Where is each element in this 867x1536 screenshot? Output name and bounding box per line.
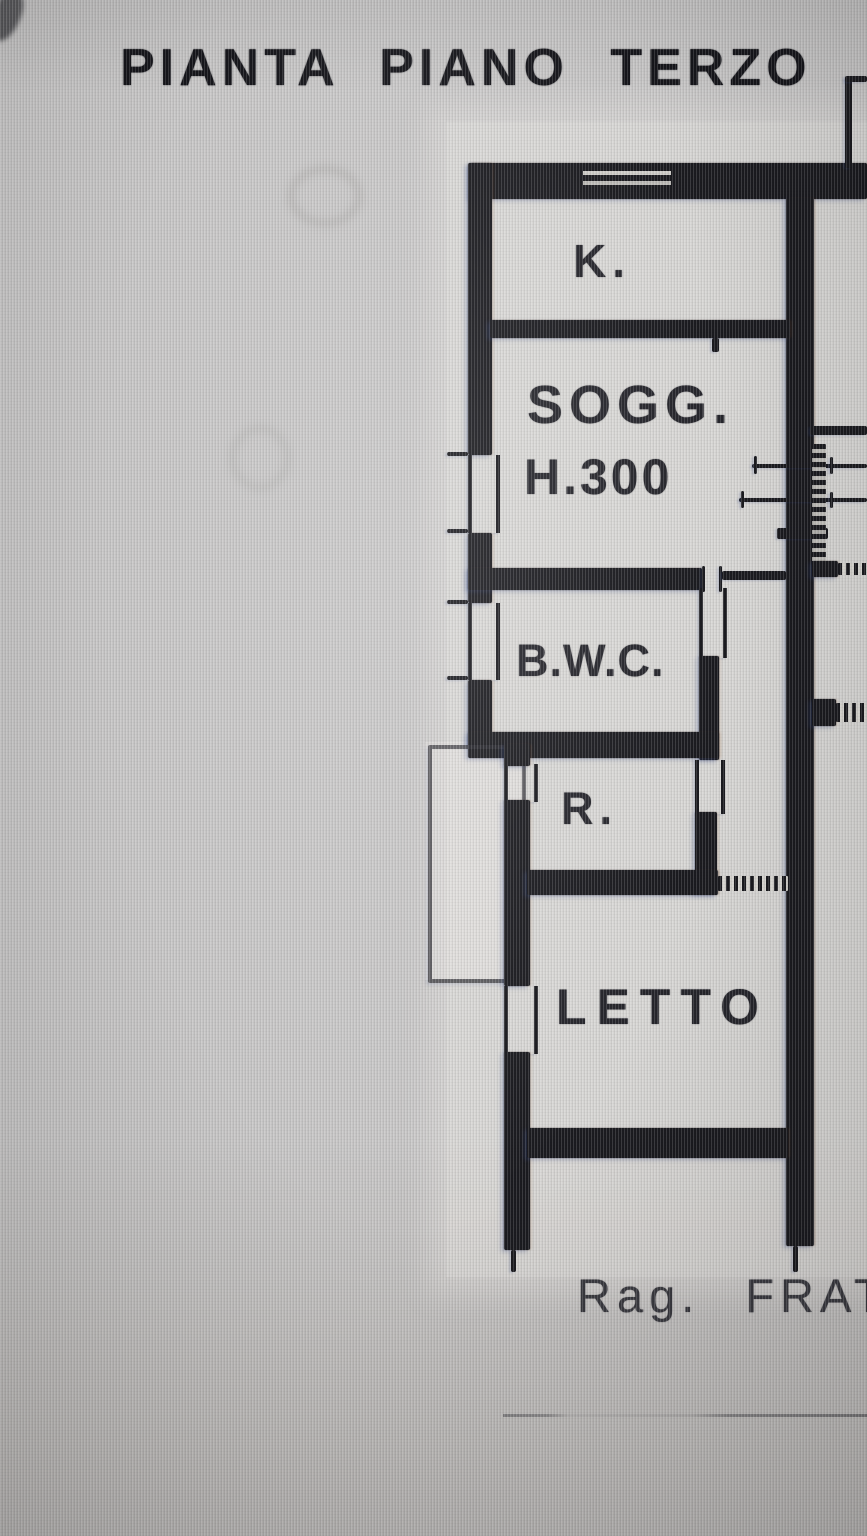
window-tick [447,600,468,604]
room-label-living: SOGG. [527,378,734,432]
room-label-storage: R. [561,786,618,831]
surveyor-signature: Rag. FRAT [577,1268,867,1323]
dimension-tick [754,456,757,474]
room-label-bedroom: LETTO [556,982,769,1032]
wall-left-upper [468,163,492,455]
neighbor-door-hatch [838,563,867,575]
dimension-line [739,498,867,502]
neighbor-wall-stub [812,561,838,577]
wall-sogg-bottom [468,568,702,590]
wall-right-main [786,198,814,1246]
wall-divider-k-sogg [490,320,790,338]
dimension-tick [830,492,833,508]
wall-r-bottom [527,870,718,895]
room-label-kitchen: K. [573,238,631,284]
window-tick [447,452,468,456]
window-letto-left [504,986,538,1054]
floorplan-photo: PIANTA PIANO TERZO [0,0,867,1536]
neighbor-wall-stub [812,699,836,726]
neighbor-door-hatch [836,703,867,722]
door-hatch-corridor-letto [718,876,788,891]
room-height-note: H.300 [524,452,672,502]
window-bwc-left [468,603,500,680]
room-label-bathroom: B.W.C. [516,638,665,683]
window-tick [447,676,468,680]
divider-tick [712,338,719,352]
wall-tail-bottom-left [511,1250,516,1272]
wall-r-left-top [504,744,530,766]
window-hatch-neighbor [812,444,826,566]
faint-pencil-line [503,1414,867,1417]
dimension-tick [830,457,833,474]
window-tick [447,529,468,533]
window-kitchen-top [583,168,671,192]
wall-stub-top-right-vertical [845,78,852,168]
neighbor-wall-line [810,426,867,435]
door-r-left [504,764,538,802]
wall-stub-top-right-horizontal [845,76,867,82]
lintel-corridor-top [722,571,786,580]
door-bwc-right [699,588,727,658]
dimension-tick [741,491,744,508]
window-sogg-left [468,455,500,533]
wall-letto-bottom [527,1128,788,1158]
dimension-line [752,464,867,468]
door-r-right [695,760,725,814]
